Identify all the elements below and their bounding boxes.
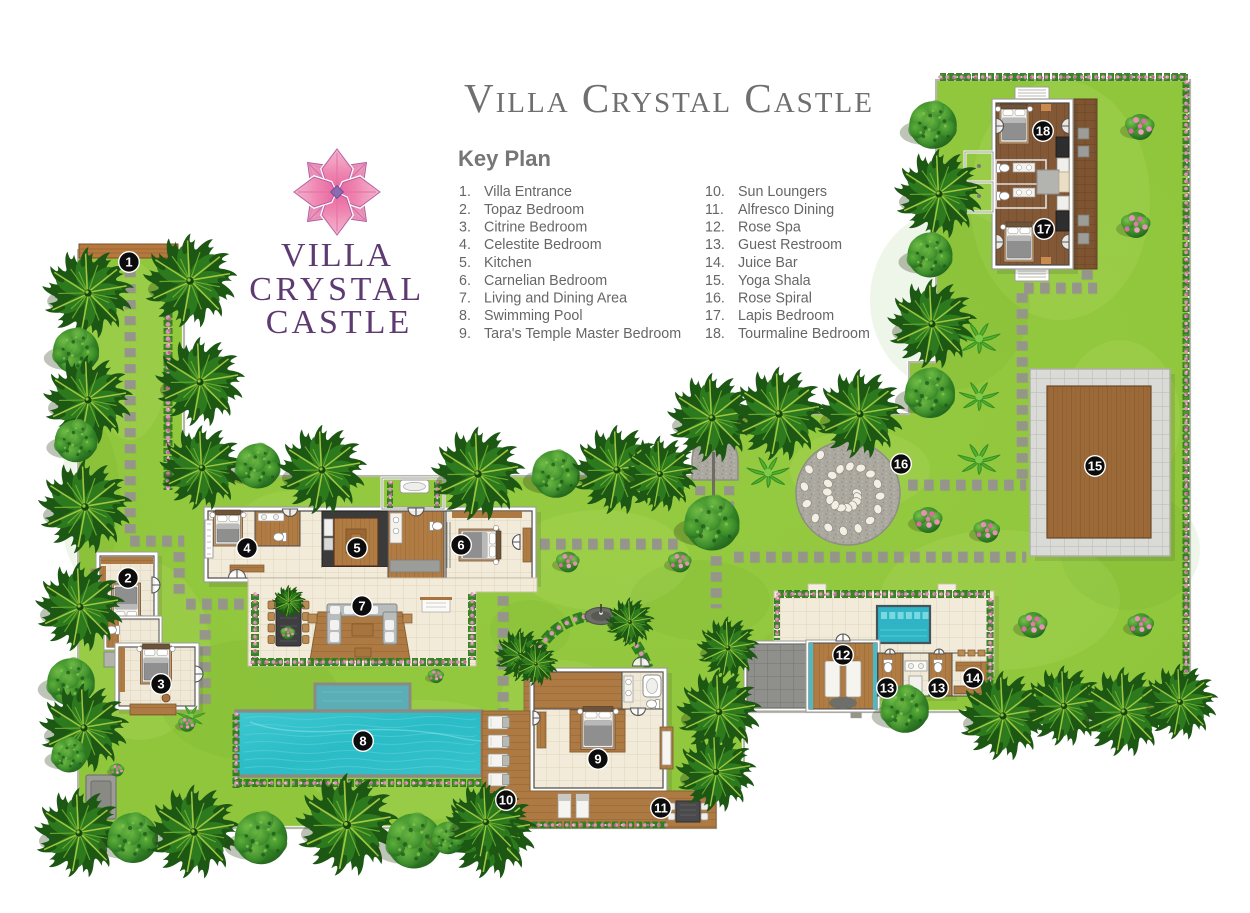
svg-text:16.: 16. (705, 291, 725, 307)
svg-text:9: 9 (594, 752, 601, 767)
svg-text:CASTLE: CASTLE (266, 304, 412, 341)
svg-text:17.: 17. (705, 308, 725, 324)
svg-text:Living and Dining Area: Living and Dining Area (484, 291, 627, 307)
svg-text:5.: 5. (459, 255, 471, 271)
svg-text:9.: 9. (459, 326, 471, 342)
svg-text:Lapis Bedroom: Lapis Bedroom (738, 308, 834, 324)
svg-text:7: 7 (358, 599, 365, 614)
svg-text:11.: 11. (705, 202, 724, 218)
svg-text:Sun Loungers: Sun Loungers (738, 184, 827, 200)
svg-text:10: 10 (499, 793, 513, 808)
svg-text:Key Plan: Key Plan (458, 146, 551, 171)
svg-text:Alfresco Dining: Alfresco Dining (738, 202, 834, 218)
svg-text:Yoga Shala: Yoga Shala (738, 273, 811, 289)
svg-text:7.: 7. (459, 291, 471, 307)
svg-text:Rose Spiral: Rose Spiral (738, 291, 812, 307)
svg-text:Villa Entrance: Villa Entrance (484, 184, 572, 200)
svg-text:1: 1 (125, 255, 132, 270)
svg-text:15: 15 (1088, 459, 1102, 474)
svg-text:3.: 3. (459, 220, 471, 236)
svg-text:3: 3 (157, 677, 164, 692)
svg-text:15.: 15. (705, 273, 725, 289)
svg-text:Citrine Bedroom: Citrine Bedroom (484, 220, 587, 236)
svg-text:Swimming Pool: Swimming Pool (484, 308, 583, 324)
svg-text:Topaz Bedroom: Topaz Bedroom (484, 202, 584, 218)
svg-text:Tourmaline Bedroom: Tourmaline Bedroom (738, 326, 870, 342)
svg-text:2.: 2. (459, 202, 471, 218)
svg-text:Juice Bar: Juice Bar (738, 255, 798, 271)
svg-text:4: 4 (243, 541, 251, 556)
svg-text:Carnelian Bedroom: Carnelian Bedroom (484, 273, 607, 289)
svg-text:16: 16 (894, 457, 908, 472)
svg-text:Kitchen: Kitchen (484, 255, 532, 271)
svg-text:18.: 18. (705, 326, 725, 342)
svg-text:Celestite Bedroom: Celestite Bedroom (484, 237, 602, 253)
svg-text:4.: 4. (459, 237, 471, 253)
svg-text:12.: 12. (705, 220, 725, 236)
svg-text:11: 11 (654, 801, 668, 816)
svg-text:8.: 8. (459, 308, 471, 324)
svg-text:12: 12 (836, 648, 850, 663)
svg-text:18: 18 (1036, 124, 1050, 139)
svg-text:17: 17 (1037, 222, 1051, 237)
svg-text:Tara's Temple Master Bedroom: Tara's Temple Master Bedroom (484, 326, 681, 342)
svg-text:14.: 14. (705, 255, 725, 271)
svg-text:Rose Spa: Rose Spa (738, 220, 801, 236)
svg-text:14: 14 (966, 671, 981, 686)
svg-text:13: 13 (880, 681, 894, 696)
svg-text:6.: 6. (459, 273, 471, 289)
svg-text:13.: 13. (705, 237, 725, 253)
svg-text:Guest Restroom: Guest Restroom (738, 237, 842, 253)
svg-text:8: 8 (359, 734, 366, 749)
svg-text:Villa Crystal Castle: Villa Crystal Castle (464, 75, 874, 121)
svg-text:CRYSTAL: CRYSTAL (249, 271, 425, 308)
svg-text:10.: 10. (705, 184, 725, 200)
svg-text:6: 6 (457, 538, 464, 553)
svg-text:13: 13 (931, 681, 945, 696)
svg-text:1.: 1. (459, 184, 471, 200)
svg-text:5: 5 (353, 541, 360, 556)
svg-text:2: 2 (124, 571, 131, 586)
svg-text:VILLA: VILLA (281, 237, 393, 274)
